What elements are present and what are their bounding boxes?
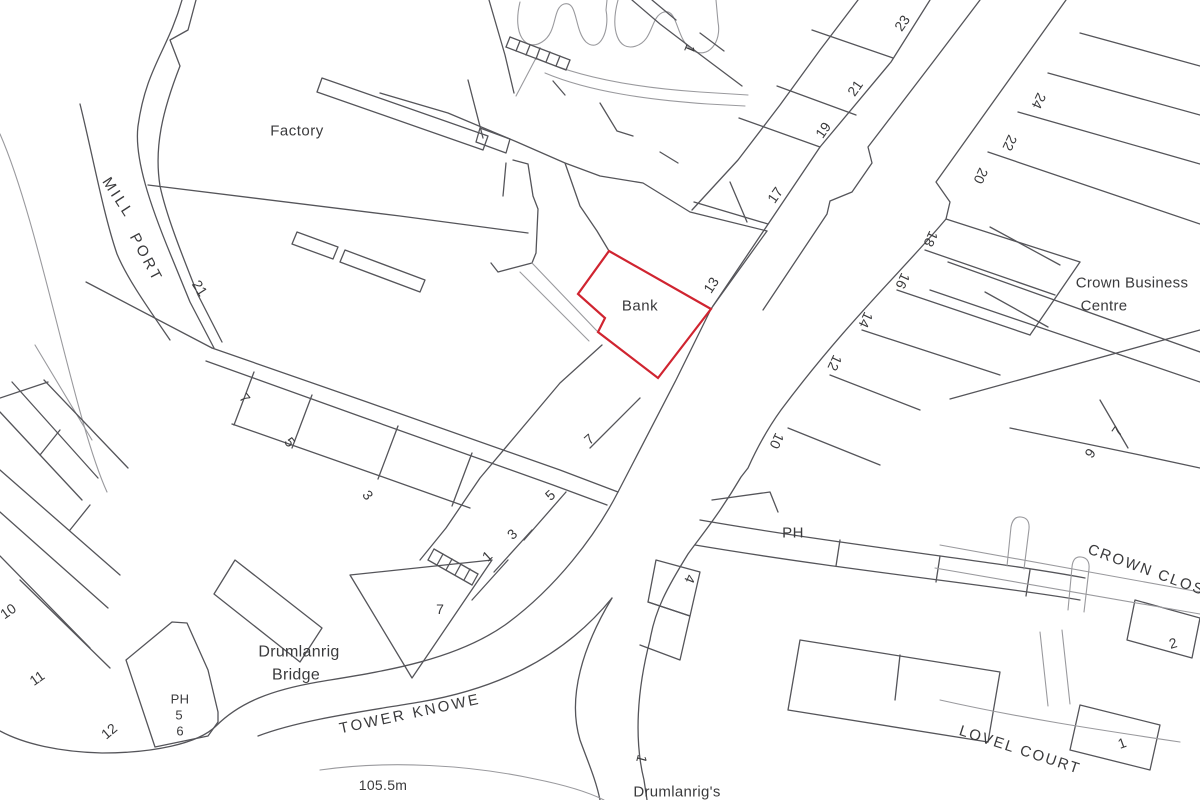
- label-lovel-court: LOVEL COURT: [957, 722, 1083, 777]
- main-road-west-edge: [0, 0, 930, 753]
- mill-port-west-edge: [80, 104, 170, 340]
- plot-number-22-16: 22: [999, 133, 1020, 154]
- field-fence-line: [35, 345, 92, 440]
- plot-number-20-17: 20: [970, 166, 991, 187]
- label-crown-business-2: Centre: [1081, 298, 1128, 315]
- plot-number-1-14: 1: [681, 42, 699, 55]
- plot-number-7-23: 7: [1108, 423, 1126, 439]
- label-drumlanrig: Drumlanrig: [258, 644, 339, 661]
- plot-number-24-15: 24: [1028, 91, 1049, 112]
- label-drumlanrigs: Drumlanrig's: [633, 784, 720, 800]
- plot-number-12-21: 12: [824, 353, 845, 374]
- plot-number-23-13: 23: [891, 12, 913, 34]
- plot-number-10-22: 10: [766, 431, 787, 452]
- plot-number-10-29: 10: [0, 600, 19, 622]
- steps-hatching-north: [506, 37, 570, 70]
- plot-number-1-28: 1: [1116, 734, 1129, 752]
- plot-number-16-19: 16: [892, 271, 913, 292]
- plot-number-5-6: 5: [542, 486, 559, 503]
- steps-hatching-south: [428, 549, 478, 585]
- plot-number-11-30: 11: [26, 667, 47, 689]
- label-bridge: Bridge: [272, 667, 320, 684]
- plot-number-13-9: 13: [700, 274, 722, 296]
- bank-outline[interactable]: [578, 251, 711, 378]
- label-mill: MILL: [99, 174, 138, 221]
- label-ph-west-5: 5: [175, 708, 182, 723]
- label-crown-business: Crown Business: [1076, 275, 1189, 292]
- plot-number-12-31: 12: [98, 720, 120, 742]
- plot-number-14-20: 14: [855, 310, 876, 331]
- street-plan-svg: FactoryMILLPORTBankCrown BusinessCentreD…: [0, 0, 1200, 800]
- label-ph-west-6: 6: [176, 724, 183, 739]
- plot-number-7-7: 7: [581, 430, 598, 447]
- plot-number-7-8: 7: [436, 601, 444, 617]
- back-lane-north: [212, 348, 618, 492]
- mill-port-east-inner: [158, 0, 222, 342]
- highlighted-property[interactable]: [578, 251, 711, 378]
- plot-number-5-2: 5: [281, 434, 299, 450]
- label-port: PORT: [126, 230, 166, 285]
- plot-number-4-25: 4: [681, 572, 699, 585]
- plot-number-18-18: 18: [920, 229, 941, 250]
- northeast-terraces: [692, 0, 1200, 468]
- mill-port-east-edge: [137, 0, 214, 348]
- label-layer: FactoryMILLPORTBankCrown BusinessCentreD…: [0, 12, 1200, 800]
- southeast-blocks: [640, 492, 1200, 770]
- label-bank: Bank: [622, 298, 658, 315]
- plot-number-1-26: 1: [633, 753, 651, 765]
- plot-number-2-27: 2: [1167, 634, 1179, 652]
- label-factory: Factory: [270, 123, 324, 140]
- label-ph-west: PH: [171, 692, 190, 707]
- label-ph-east: PH: [782, 525, 804, 542]
- plot-number-3-5: 3: [504, 525, 521, 542]
- south-lane-west-edge: [575, 598, 612, 800]
- plot-number-9-24: 9: [1081, 445, 1099, 461]
- south-lane-east-edge: [638, 640, 650, 800]
- plot-number-3-3: 3: [359, 487, 377, 503]
- label-tower-knowe: TOWER KNOWE: [338, 691, 482, 738]
- plot-number-7-1: 7: [236, 390, 254, 406]
- label-spot-height: 105.5m: [359, 777, 408, 793]
- ph-5-6-building: [126, 622, 218, 747]
- road-divider-edge: [763, 0, 980, 310]
- back-lane-south: [206, 361, 607, 505]
- plot-number-19-11: 19: [812, 119, 834, 141]
- factory-block: [148, 0, 528, 292]
- plot-number-1-4: 1: [479, 547, 496, 564]
- map-canvas[interactable]: FactoryMILLPORTBankCrown BusinessCentreD…: [0, 0, 1200, 800]
- label-crown-close: CROWN CLOSE: [1086, 541, 1200, 603]
- road-network: [0, 0, 1066, 800]
- southwest-terraces: [86, 282, 640, 678]
